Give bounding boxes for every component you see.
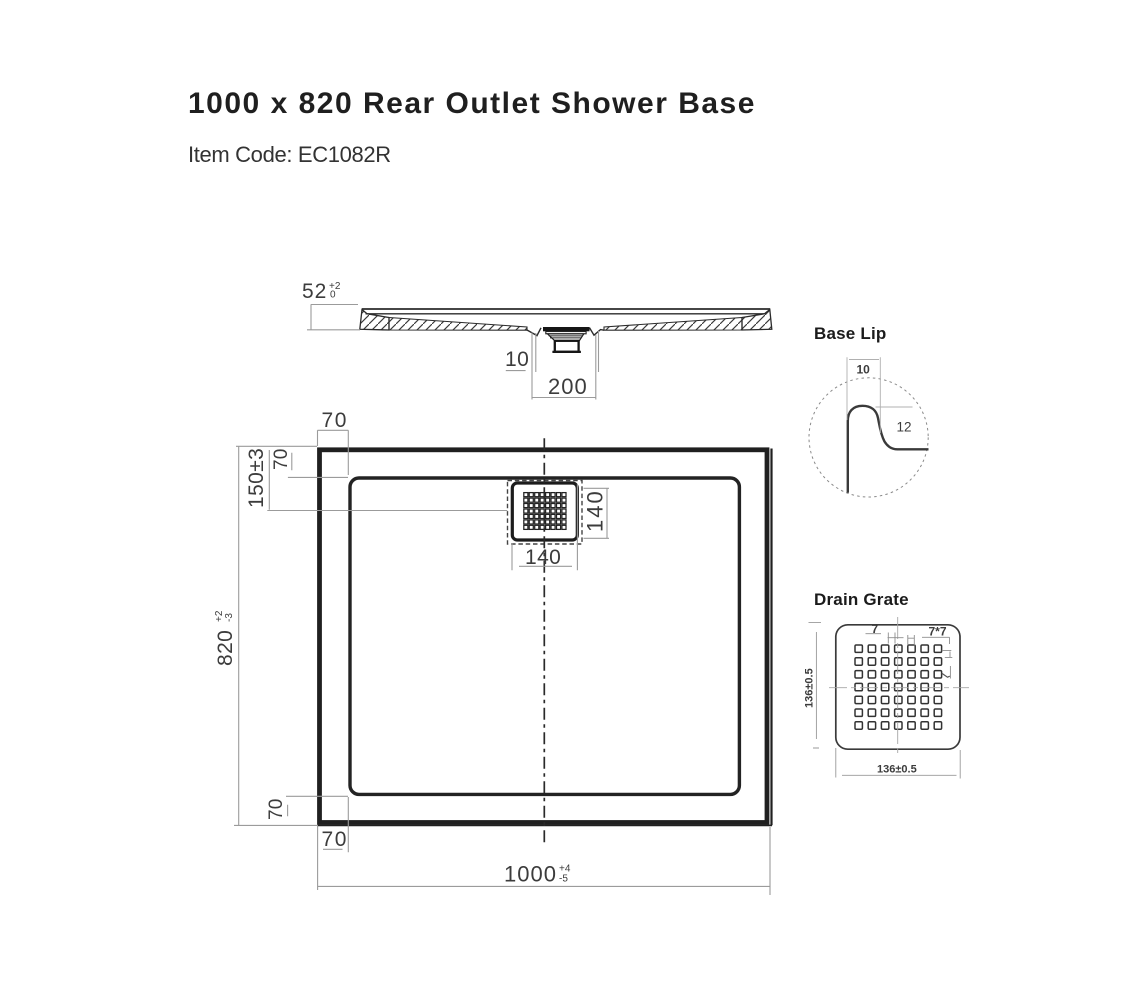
svg-text:820: 820 [214, 630, 237, 666]
svg-text:12: 12 [897, 420, 912, 435]
svg-text:Drain Grate: Drain Grate [814, 590, 909, 609]
svg-text:150±3: 150±3 [245, 448, 268, 508]
svg-text:200: 200 [548, 374, 588, 399]
svg-text:7*7: 7*7 [929, 625, 947, 639]
svg-text:1000: 1000 [504, 862, 557, 887]
svg-text:140: 140 [525, 546, 561, 569]
svg-text:136±0.5: 136±0.5 [804, 668, 816, 708]
svg-text:10: 10 [857, 363, 871, 377]
svg-text:140: 140 [583, 489, 608, 532]
svg-text:7: 7 [872, 622, 879, 636]
svg-text:136±0.5: 136±0.5 [877, 764, 917, 776]
svg-text:0: 0 [330, 290, 336, 301]
svg-text:-5: -5 [559, 874, 568, 885]
svg-text:52: 52 [302, 280, 327, 303]
svg-text:Base Lip: Base Lip [814, 324, 886, 343]
svg-text:70: 70 [271, 448, 292, 470]
svg-text:70: 70 [322, 409, 349, 432]
svg-text:70: 70 [266, 798, 287, 820]
svg-text:70: 70 [322, 828, 349, 851]
svg-text:10: 10 [505, 348, 529, 371]
svg-text:-3: -3 [224, 613, 235, 622]
